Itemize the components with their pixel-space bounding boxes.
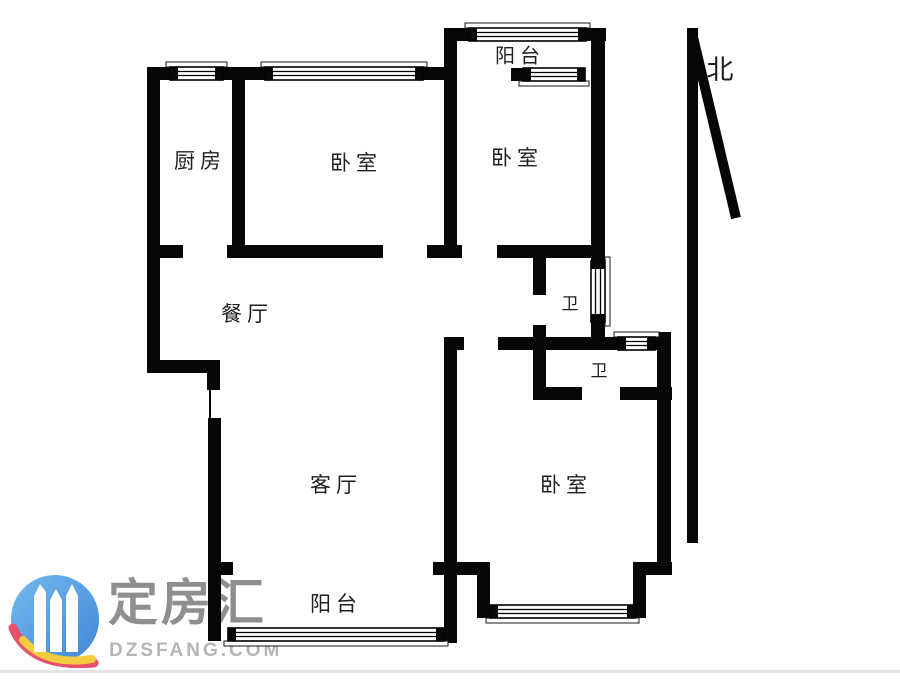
wall-segment <box>208 562 233 575</box>
north-arrow-bar <box>687 28 698 543</box>
wall-segment <box>147 360 220 373</box>
room-label: 客厅 <box>310 473 362 497</box>
wall-segment <box>147 67 160 373</box>
window-cap <box>469 28 477 41</box>
wall-segment <box>147 67 173 80</box>
window-cap <box>591 314 605 322</box>
wall-segment <box>208 575 221 641</box>
window-cap <box>215 67 223 80</box>
wall-segment <box>227 245 383 258</box>
window-cap <box>170 67 178 80</box>
window <box>265 67 423 80</box>
window <box>490 605 635 618</box>
room-label: 卧室 <box>491 146 543 170</box>
room-label: 阳台 <box>495 45 545 68</box>
wall-segment <box>221 67 267 80</box>
window-cap <box>523 68 531 81</box>
wall-segment <box>232 67 245 258</box>
wall-segment <box>657 332 671 575</box>
wall-segment <box>533 253 546 295</box>
bottom-border <box>0 670 900 673</box>
wall-segment <box>444 337 457 643</box>
window-cap <box>436 628 444 641</box>
room-label: 阳台 <box>310 592 362 616</box>
wall-segment <box>427 245 462 258</box>
wall-segment <box>208 418 221 575</box>
window-cap <box>647 337 655 350</box>
room-label: 餐厅 <box>221 302 273 326</box>
window <box>591 261 605 322</box>
room-label: 卧室 <box>330 151 382 175</box>
wall-segment <box>591 28 605 263</box>
window <box>228 628 444 641</box>
room-label: 厨房 <box>174 149 226 173</box>
window-cap <box>415 67 423 80</box>
window <box>469 28 586 41</box>
window-cap <box>591 261 605 269</box>
wall-segment <box>433 562 490 575</box>
wall-segment <box>498 337 620 350</box>
north-label: 北 <box>707 55 734 85</box>
window-cap <box>490 605 498 618</box>
floorplan-image: 定房汇 DZSFANG.COM 北厨房卧室阳台卧室餐厅卫卫客厅卧室阳台 <box>0 0 900 679</box>
window-cap <box>578 28 586 41</box>
wall-segment <box>444 28 457 258</box>
floorplan-svg: 北厨房卧室阳台卧室餐厅卫卫客厅卧室阳台 <box>0 0 900 679</box>
wall-thin-segment <box>209 390 211 420</box>
wall-segment <box>147 245 183 258</box>
window-cap <box>627 605 635 618</box>
wall-segment <box>497 245 605 258</box>
window-cap <box>577 68 585 81</box>
wall-segment <box>533 387 582 400</box>
room-label: 卧室 <box>540 473 592 497</box>
room-label: 卫 <box>591 361 608 380</box>
wall-segment <box>477 575 490 618</box>
window-cap <box>265 67 273 80</box>
room-label: 卫 <box>562 294 579 313</box>
window-cap <box>228 628 236 641</box>
window-cap <box>618 337 626 350</box>
window <box>523 68 585 81</box>
